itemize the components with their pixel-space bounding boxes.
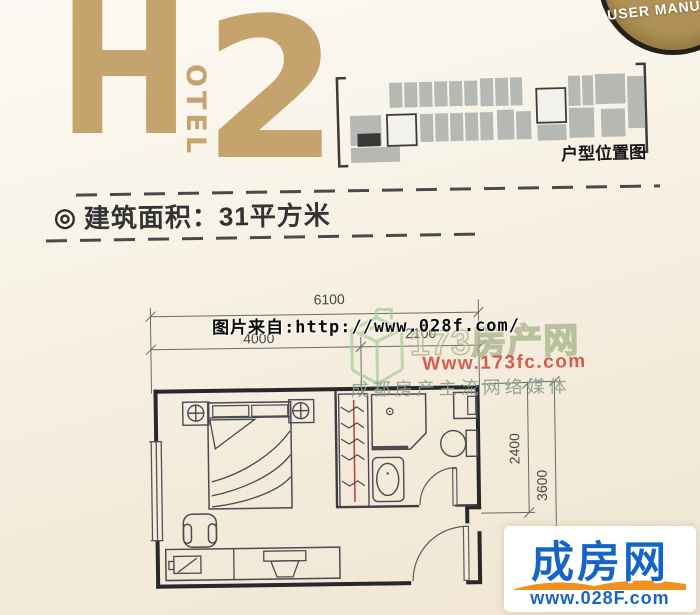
bathroom-door <box>420 468 458 507</box>
pillow <box>213 405 249 417</box>
unit-location-diagram: 户型位置图 <box>332 60 657 175</box>
stool <box>264 551 306 578</box>
028f-logo-name: 成房网 <box>504 528 696 590</box>
watermark-173-slogan: 成都房产主流网络媒体 <box>350 372 570 402</box>
location-diagram-label: 户型位置图 <box>561 142 647 164</box>
shower <box>372 394 427 450</box>
outer-walls <box>155 387 480 586</box>
watermark-photo-source: 图片来自:http://www.028f.com/ <box>212 311 520 339</box>
double-bed <box>208 402 292 509</box>
core-block-2 <box>387 114 417 146</box>
logo-number-2: 2 <box>203 0 339 187</box>
pillow <box>252 405 288 417</box>
building-area-line: ◎ 建筑面积：31平方米 <box>54 195 331 236</box>
scanned-floorplan-page: USER MANU H OTEL 2 <box>0 0 700 615</box>
toilet <box>441 430 478 457</box>
highlighted-unit <box>357 133 380 147</box>
nightstand-left <box>183 402 209 425</box>
bullseye-icon: ◎ <box>54 202 77 232</box>
counter <box>166 547 340 580</box>
core-block-1 <box>536 88 566 123</box>
chair <box>183 514 216 547</box>
dim-depth-upper: 2400 <box>506 433 522 465</box>
hanger-icons <box>341 407 365 486</box>
window <box>149 442 163 541</box>
dim-depth-total: 3600 <box>534 469 550 501</box>
tv <box>169 556 201 573</box>
building-area-text: 建筑面积：31平方米 <box>84 195 331 235</box>
watermark-028f-logo: 成房网 www.028F.com <box>504 526 696 612</box>
blanket-fold <box>210 419 255 449</box>
logo-letter-h: H <box>58 0 190 162</box>
sink <box>372 457 404 501</box>
closet <box>339 394 370 507</box>
dashed-divider-top <box>76 184 660 196</box>
028f-logo-url: www.028F.com <box>504 588 696 609</box>
entry-door <box>412 526 469 581</box>
nightstand-right <box>289 399 314 422</box>
